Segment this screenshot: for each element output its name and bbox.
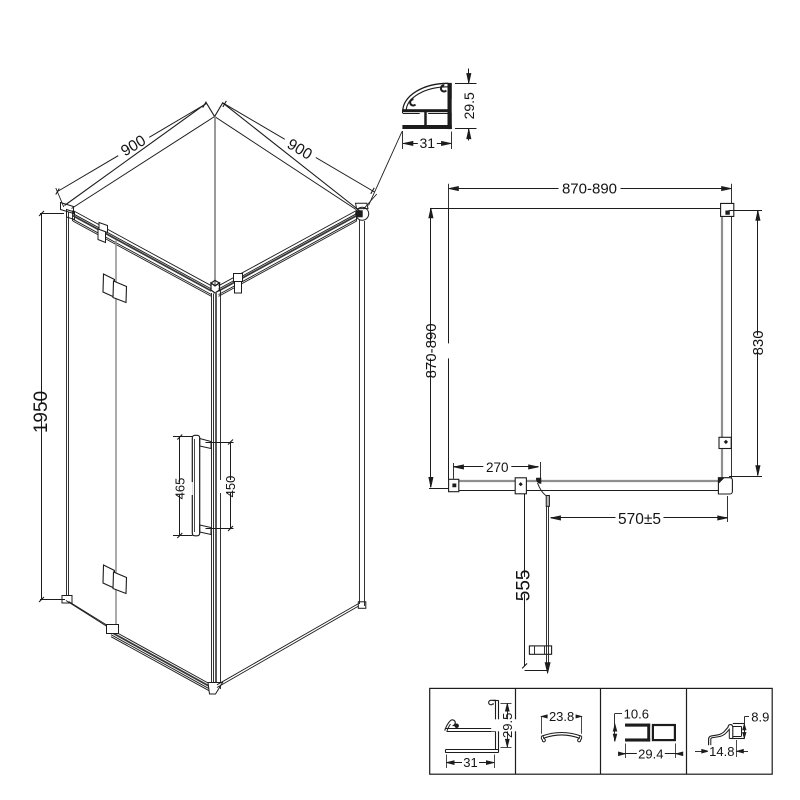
svg-text:31: 31	[420, 135, 436, 151]
svg-text:29.5: 29.5	[461, 92, 477, 119]
svg-text:870-890: 870-890	[423, 323, 440, 378]
svg-text:270: 270	[486, 460, 509, 475]
svg-text:14.8: 14.8	[709, 744, 734, 759]
svg-text:10.6: 10.6	[624, 706, 649, 721]
svg-text:555: 555	[514, 570, 535, 602]
svg-text:8.9: 8.9	[751, 710, 769, 725]
svg-text:465: 465	[172, 478, 187, 500]
svg-text:29.5: 29.5	[500, 713, 515, 738]
svg-text:1950: 1950	[31, 391, 52, 433]
svg-text:450: 450	[223, 476, 238, 498]
svg-text:23.8: 23.8	[549, 709, 574, 724]
svg-text:830: 830	[750, 330, 767, 355]
svg-text:870-890: 870-890	[562, 181, 617, 198]
svg-text:31: 31	[463, 755, 477, 770]
svg-text:29.4: 29.4	[638, 746, 663, 761]
svg-text:570±5: 570±5	[618, 511, 661, 528]
